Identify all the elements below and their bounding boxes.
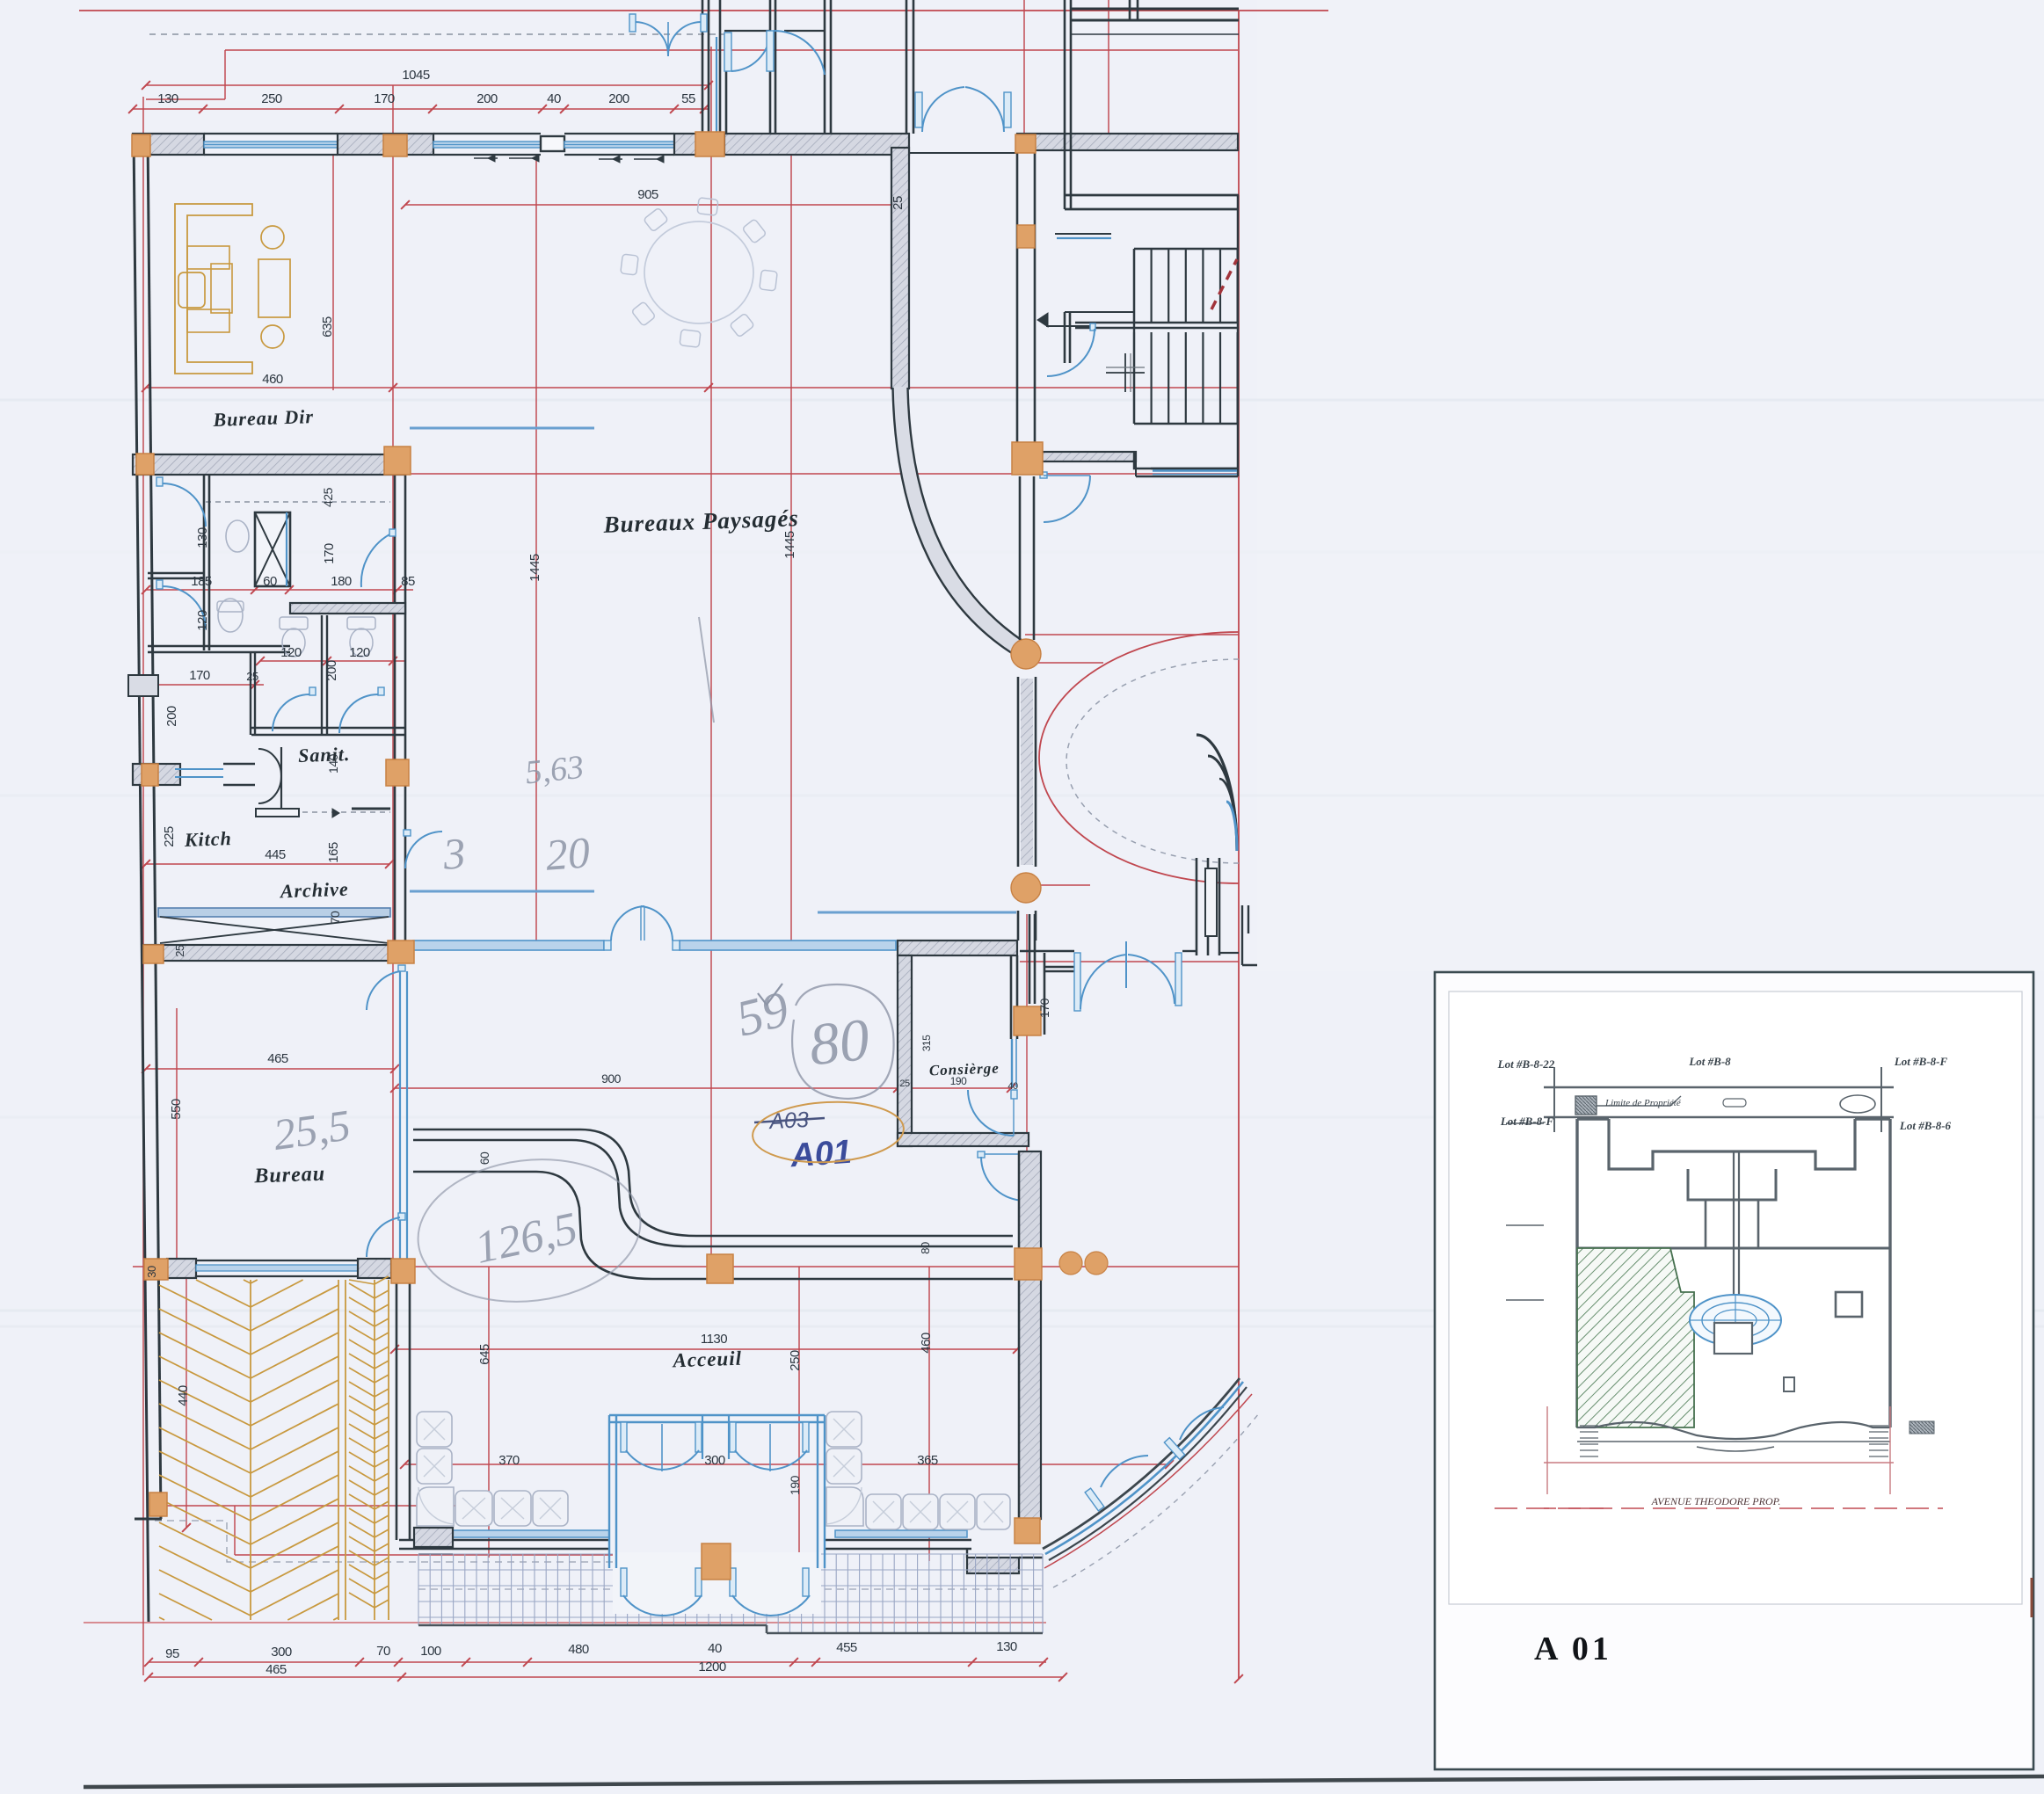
svg-text:445: 445 (265, 847, 286, 862)
svg-text:365: 365 (917, 1453, 938, 1468)
svg-text:170: 170 (322, 543, 337, 564)
svg-text:25: 25 (246, 670, 258, 683)
svg-text:AVENUE THEODORE PROP.: AVENUE THEODORE PROP. (1651, 1495, 1781, 1507)
svg-text:25: 25 (173, 945, 186, 957)
svg-text:185: 185 (191, 574, 212, 589)
svg-text:25: 25 (899, 1079, 910, 1089)
svg-text:Kitch: Kitch (183, 827, 232, 851)
svg-text:Acceuil: Acceuil (671, 1347, 742, 1372)
svg-text:A01: A01 (789, 1134, 853, 1175)
svg-text:200: 200 (608, 91, 629, 106)
svg-text:40: 40 (708, 1641, 722, 1656)
svg-text:Lot #B-8: Lot #B-8 (1688, 1055, 1731, 1068)
svg-text:40: 40 (1007, 1081, 1018, 1092)
svg-text:70: 70 (328, 911, 342, 924)
svg-text:460: 460 (919, 1333, 934, 1354)
svg-text:370: 370 (498, 1453, 520, 1468)
svg-text:Lot #B-8-F: Lot #B-8-F (1894, 1055, 1948, 1068)
svg-text:40: 40 (547, 91, 561, 106)
svg-text:60: 60 (263, 574, 277, 589)
svg-text:170: 170 (189, 668, 210, 683)
svg-text:130: 130 (195, 527, 210, 548)
svg-text:Consièrge: Consièrge (929, 1060, 1000, 1079)
svg-text:190: 190 (788, 1475, 802, 1495)
svg-text:Bureau Dir: Bureau Dir (212, 405, 314, 431)
svg-text:465: 465 (266, 1662, 287, 1677)
svg-text:25: 25 (891, 196, 906, 210)
svg-text:Limite de Propriété: Limite de Propriété (1604, 1098, 1682, 1108)
svg-text:70: 70 (376, 1644, 390, 1659)
svg-text:170: 170 (1037, 998, 1051, 1018)
svg-text:A 01: A 01 (1534, 1631, 1612, 1667)
svg-text:635: 635 (320, 316, 335, 338)
svg-text:95: 95 (165, 1646, 179, 1661)
svg-text:300: 300 (271, 1645, 292, 1660)
svg-text:1200: 1200 (698, 1660, 726, 1674)
svg-text:250: 250 (261, 91, 282, 106)
svg-text:80: 80 (919, 1242, 932, 1254)
svg-text:130: 130 (996, 1639, 1017, 1654)
svg-text:Lot #B-8-22: Lot #B-8-22 (1497, 1057, 1555, 1071)
svg-text:100: 100 (420, 1644, 441, 1659)
svg-text:3: 3 (440, 828, 467, 879)
svg-text:200: 200 (164, 706, 179, 727)
svg-text:120: 120 (349, 645, 370, 660)
svg-text:120: 120 (280, 645, 302, 660)
svg-text:1130: 1130 (701, 1332, 727, 1347)
svg-text:Bureau: Bureau (253, 1163, 326, 1188)
svg-text:1445: 1445 (527, 554, 542, 582)
svg-text:60: 60 (477, 1151, 491, 1165)
svg-text:165: 165 (326, 842, 341, 863)
svg-text:425: 425 (321, 487, 335, 507)
svg-text:180: 180 (331, 574, 352, 589)
svg-text:1445: 1445 (782, 531, 797, 559)
svg-text:200: 200 (324, 660, 339, 681)
svg-text:Lot #B-8-6: Lot #B-8-6 (1899, 1119, 1952, 1132)
svg-text:455: 455 (836, 1640, 857, 1655)
svg-text:130: 130 (157, 91, 178, 106)
svg-text:30: 30 (145, 1266, 158, 1278)
svg-text:170: 170 (374, 91, 395, 106)
svg-text:480: 480 (568, 1642, 589, 1657)
svg-text:85: 85 (401, 574, 415, 589)
svg-text:550: 550 (169, 1099, 184, 1120)
svg-text:20: 20 (544, 827, 592, 879)
svg-text:465: 465 (267, 1051, 288, 1066)
svg-text:Archive: Archive (278, 878, 349, 903)
svg-text:80: 80 (806, 1006, 873, 1079)
svg-text:Sanit.: Sanit. (298, 743, 351, 766)
svg-text:Lot #B-8-F: Lot #B-8-F (1500, 1115, 1554, 1128)
svg-text:5,63: 5,63 (523, 749, 586, 792)
svg-text:250: 250 (788, 1350, 803, 1371)
svg-text:440: 440 (176, 1385, 191, 1406)
svg-text:225: 225 (162, 826, 177, 847)
svg-text:300: 300 (704, 1453, 725, 1468)
svg-text:120: 120 (195, 610, 210, 631)
svg-text:1045: 1045 (402, 68, 430, 83)
svg-text:200: 200 (476, 91, 498, 106)
svg-text:900: 900 (601, 1071, 622, 1086)
svg-text:315: 315 (920, 1035, 933, 1051)
svg-text:905: 905 (637, 187, 658, 202)
svg-text:460: 460 (262, 372, 283, 387)
svg-text:645: 645 (477, 1344, 492, 1365)
svg-text:55: 55 (681, 91, 695, 106)
